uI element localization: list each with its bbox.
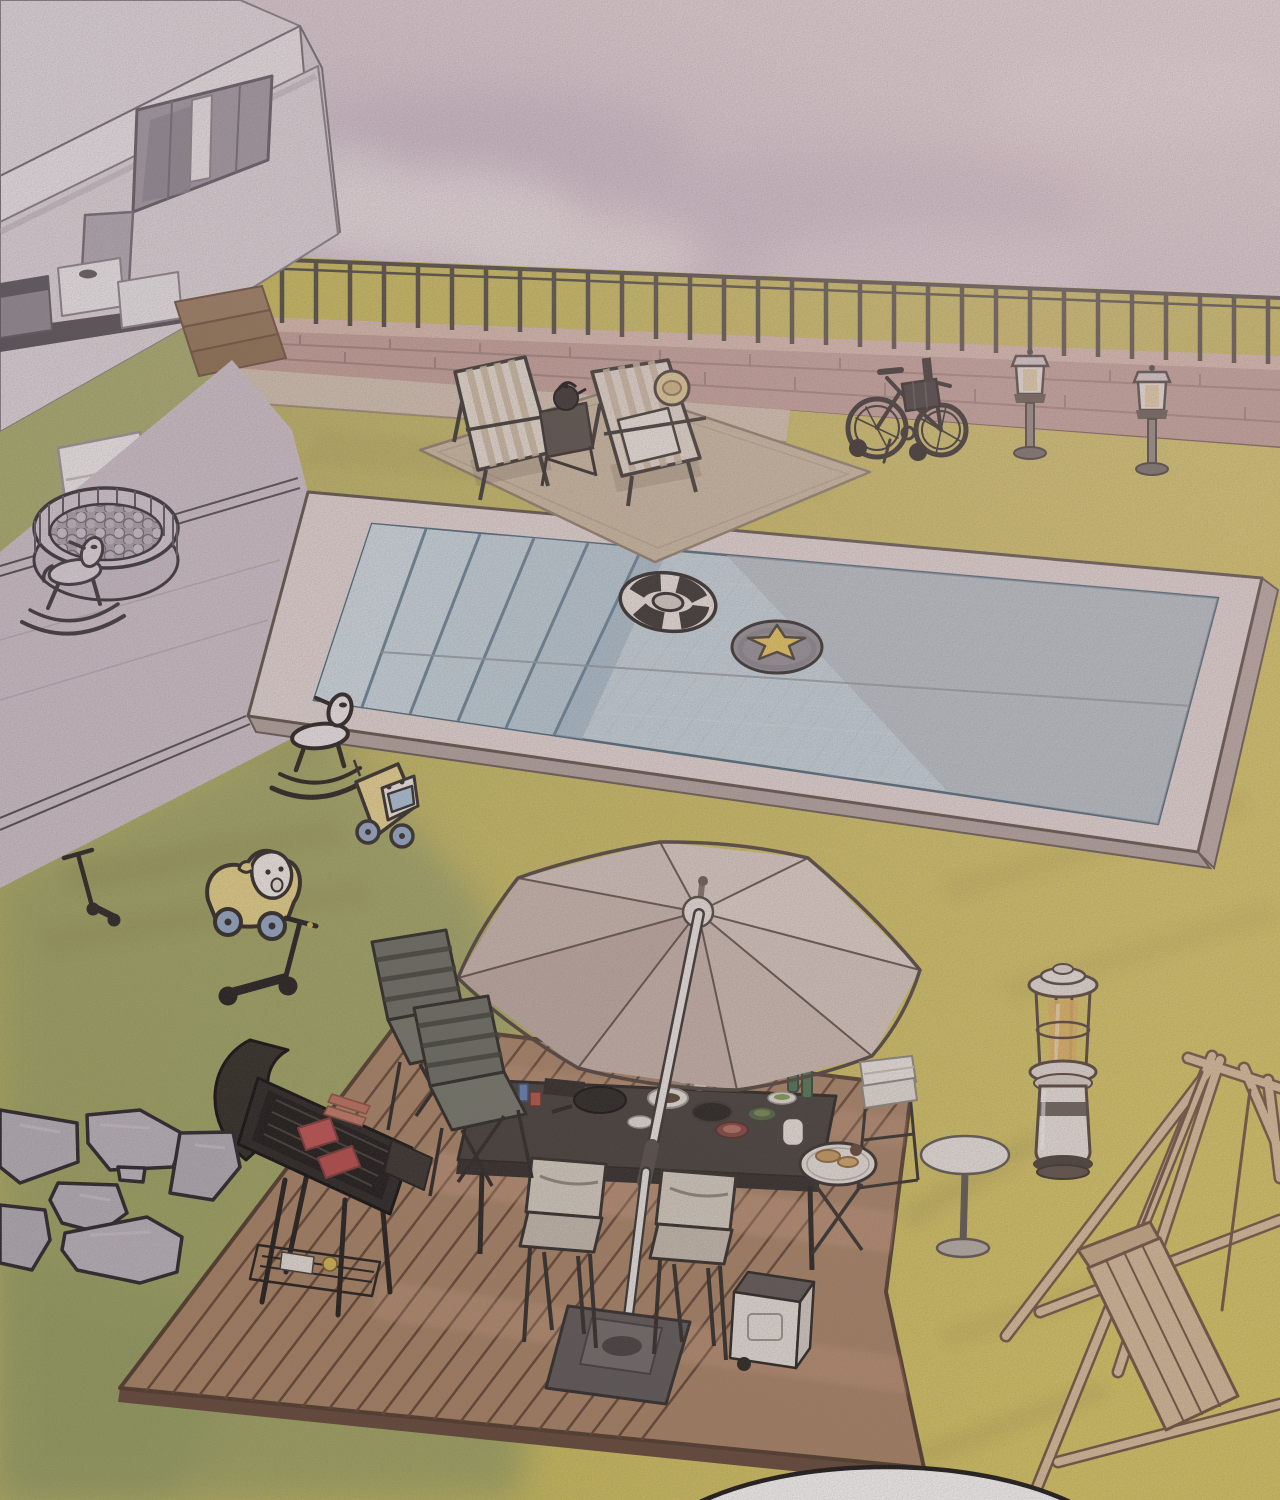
film-grain — [0, 0, 1280, 1500]
webtoon-panel — [0, 0, 1280, 1500]
